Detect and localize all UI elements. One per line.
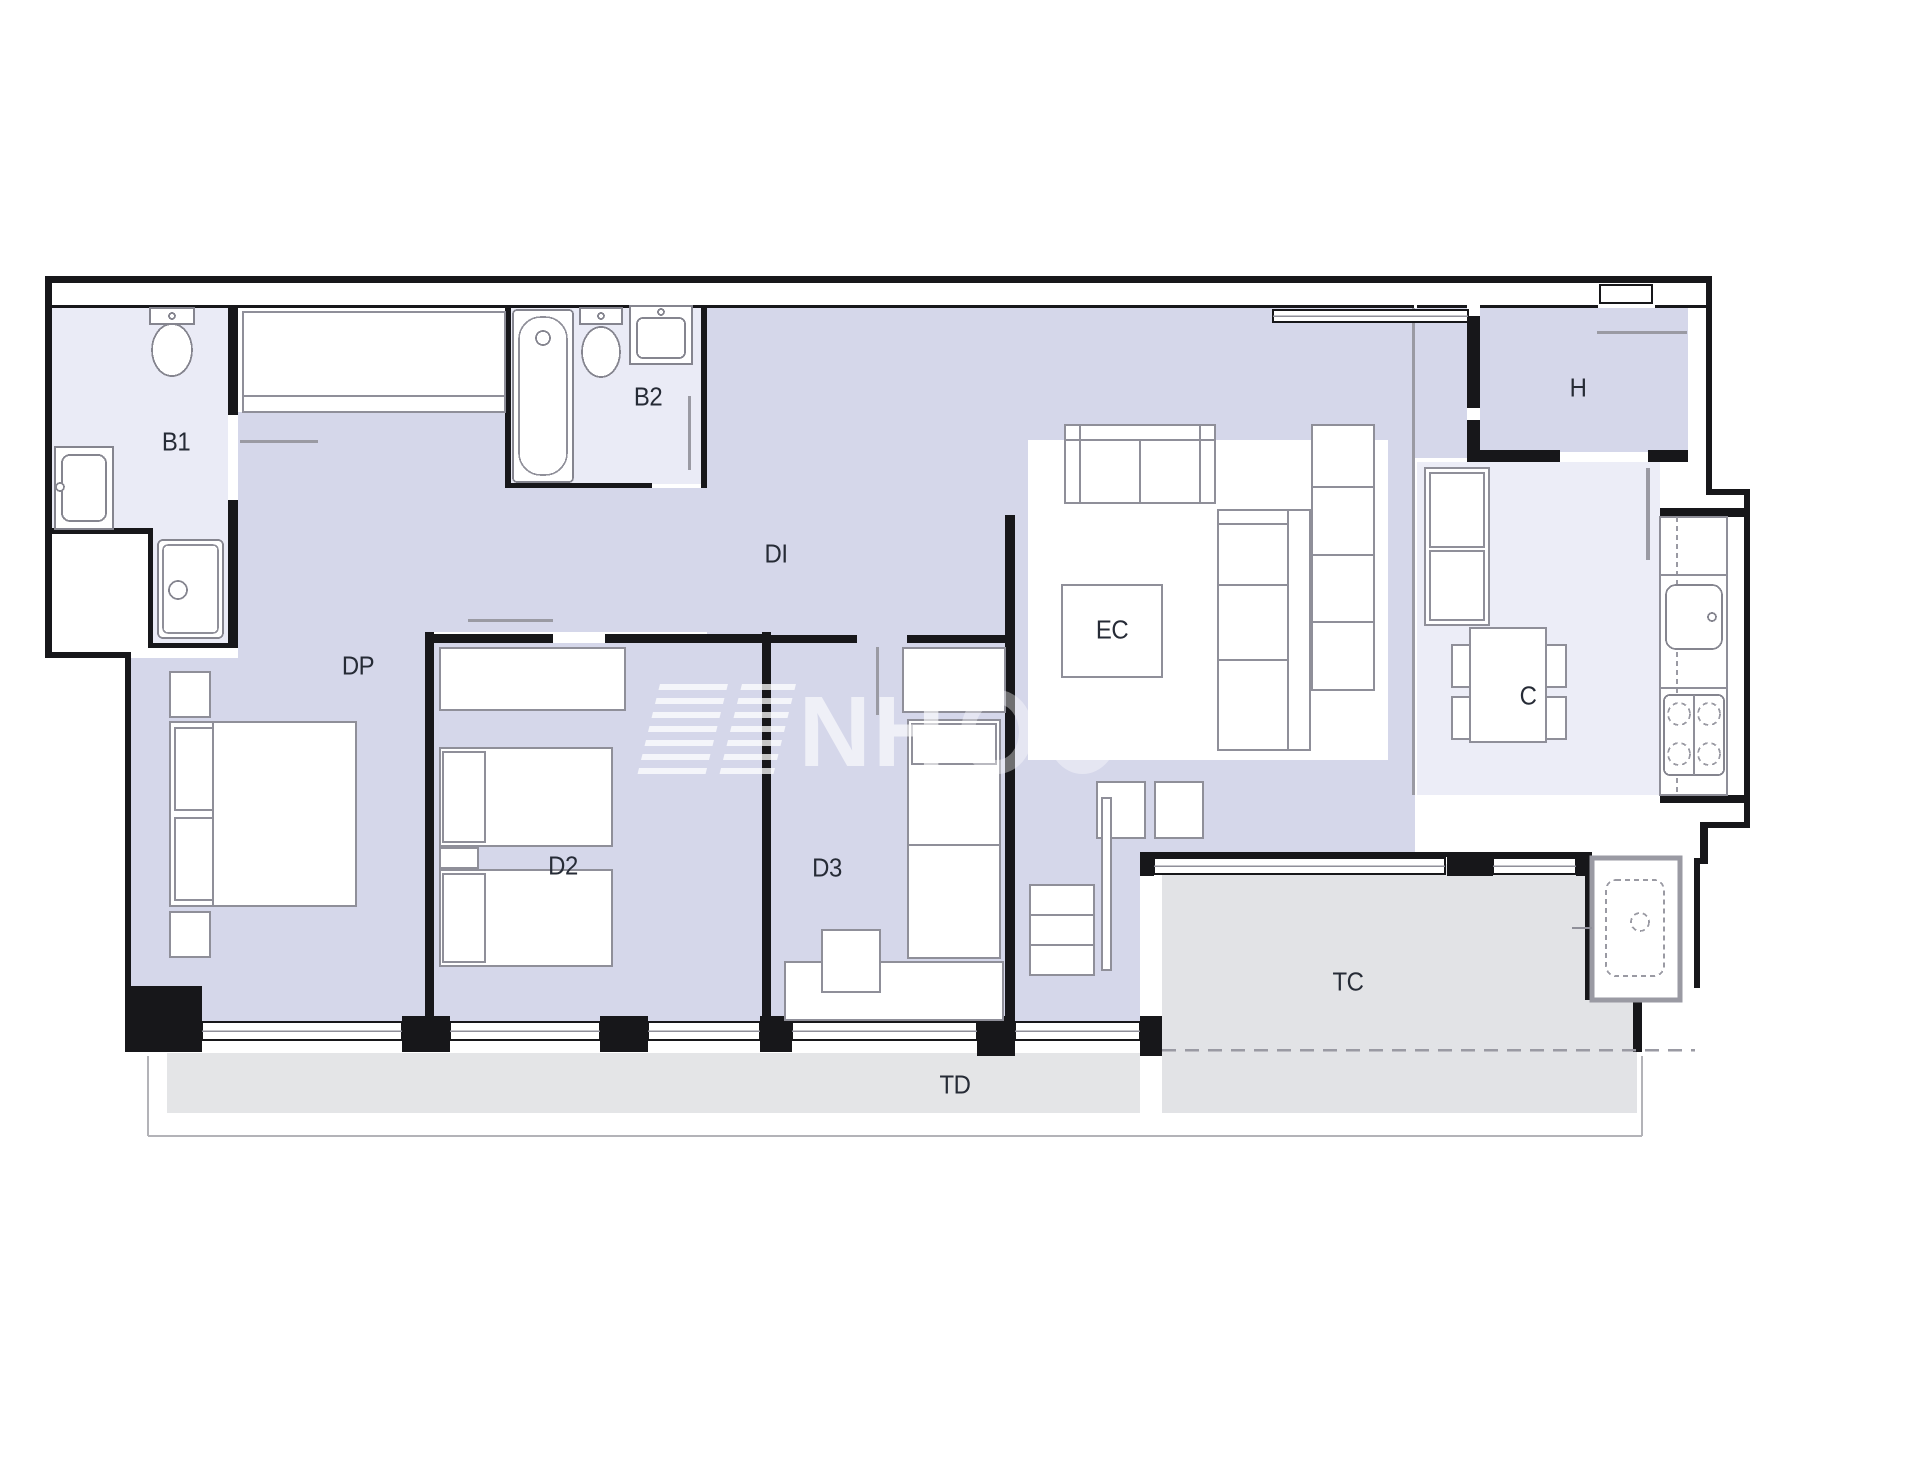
tv-screen — [1102, 798, 1111, 970]
room-label-b1: B1 — [162, 427, 190, 458]
sofa — [1065, 425, 1215, 503]
room-label-c: C — [1520, 681, 1537, 712]
chair — [822, 930, 880, 992]
closet — [243, 312, 505, 412]
desk — [785, 962, 1003, 1020]
double-bed — [170, 722, 356, 906]
kitchen-counter — [1660, 517, 1727, 795]
fridge — [1425, 468, 1489, 625]
kitchen-sink — [1666, 585, 1722, 649]
nightstand — [440, 848, 478, 868]
room-label-h: H — [1570, 373, 1587, 404]
shower — [158, 540, 223, 638]
room-label-td: TD — [940, 1070, 971, 1101]
nightstand — [170, 912, 210, 957]
toilet — [580, 308, 622, 377]
toilet — [150, 308, 194, 376]
bedroom2-furniture — [440, 648, 625, 966]
pouf — [1155, 782, 1203, 838]
room-label-d3: D3 — [812, 853, 842, 884]
wardrobe — [440, 648, 625, 710]
room-label-ec: EC — [1096, 615, 1128, 646]
sink — [55, 447, 113, 529]
nightstand — [170, 672, 210, 717]
tv-cabinet — [1030, 885, 1094, 975]
single-bed — [440, 870, 612, 966]
inner-wall-lines — [52, 305, 1712, 308]
floor-plan-drawing — [0, 0, 1920, 1462]
room-label-di: DI — [765, 539, 788, 570]
bathtub — [513, 310, 573, 482]
wardrobe — [903, 648, 1005, 712]
stove — [1664, 695, 1724, 775]
room-label-d2: D2 — [548, 851, 578, 882]
room-label-dp: DP — [342, 651, 374, 682]
sofa-2 — [1218, 510, 1310, 750]
floor-plan-page: B1 B2 DI DP D2 D3 EC H C TC TD NH — [0, 0, 1920, 1462]
entrance-door — [1600, 285, 1652, 303]
room-label-tc: TC — [1333, 967, 1364, 998]
single-bed — [908, 720, 1000, 958]
sink — [630, 306, 692, 364]
single-bed — [440, 748, 612, 846]
room-label-b2: B2 — [634, 382, 662, 413]
shelving-unit — [1312, 425, 1374, 690]
